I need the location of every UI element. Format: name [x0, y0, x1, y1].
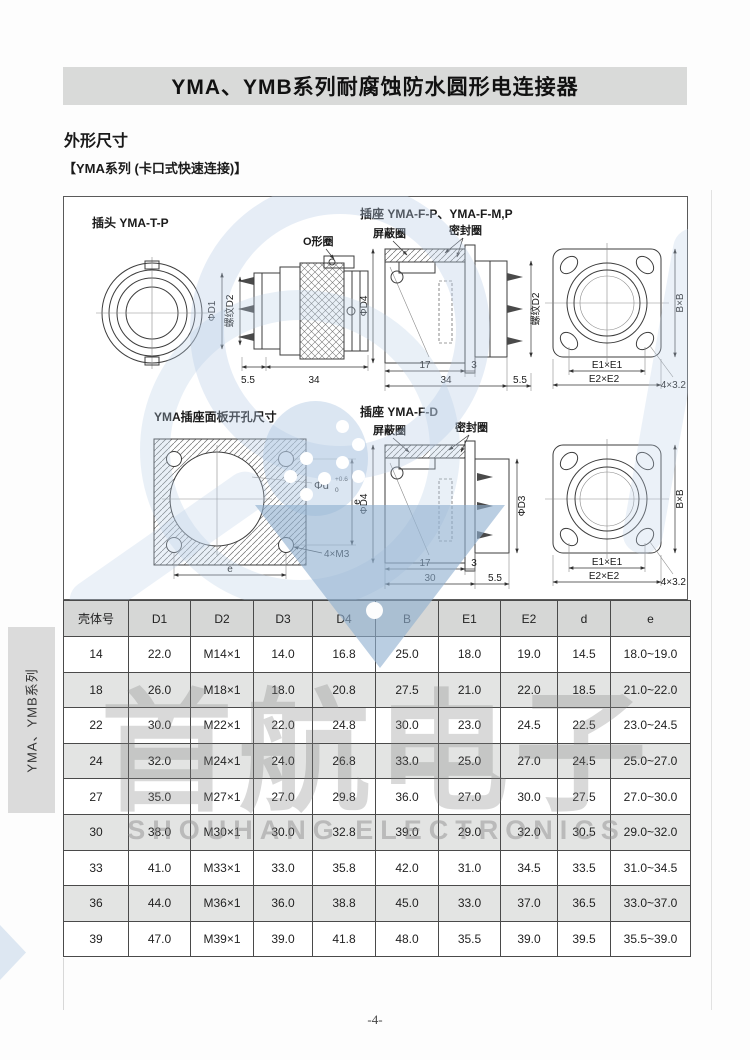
- panel-cutout-view: [154, 439, 306, 565]
- header-cell: 壳体号: [64, 601, 129, 637]
- dim-d4: ΦD4: [359, 493, 370, 514]
- table-cell: 24.5: [501, 708, 558, 744]
- table-cell: 18.5: [558, 672, 611, 708]
- dim-4x3-2: 4×3.2: [661, 380, 687, 391]
- table-cell: 27.0: [439, 779, 501, 815]
- table-cell: 22.0: [254, 708, 313, 744]
- series-subheading: 【YMA系列 (卡口式快速连接)】: [63, 158, 247, 177]
- table-cell: 35.0: [129, 779, 191, 815]
- table-cell: 19.0: [501, 637, 558, 673]
- table-row: 3644.0M36×136.038.845.033.037.036.533.0~…: [64, 886, 691, 922]
- header-cell: D1: [129, 601, 191, 637]
- socket-side-view: [385, 245, 523, 373]
- table-cell: 29.0: [439, 814, 501, 850]
- drawing-title: YMA插座面板开孔尺寸: [154, 409, 277, 424]
- drawing-title: 插座 YMA-F-P、YMA-F-M,P: [360, 206, 513, 221]
- header-cell: E2: [501, 601, 558, 637]
- table-row: 2230.0M22×122.024.830.023.024.522.523.0~…: [64, 708, 691, 744]
- shield-ring-label: 屏蔽圈: [373, 423, 406, 437]
- table-row: 1422.0M14×114.016.825.018.019.014.518.0~…: [64, 637, 691, 673]
- table-cell: 41.8: [313, 921, 376, 957]
- seal-ring-label: 密封圈: [455, 420, 488, 434]
- catalog-page: YMA、YMB系列耐腐蚀防水圆形电连接器 外形尺寸 【YMA系列 (卡口式快速连…: [0, 0, 750, 1060]
- table-cell: 30.0: [129, 708, 191, 744]
- table-cell: M24×1: [191, 743, 254, 779]
- table-cell: M30×1: [191, 814, 254, 850]
- table-cell: 29.0~32.0: [611, 814, 691, 850]
- table-cell: 14.0: [254, 637, 313, 673]
- socket-flange-view: [545, 439, 669, 559]
- table-row: 3341.0M33×133.035.842.031.034.533.531.0~…: [64, 850, 691, 886]
- dim-phi-d-tol-lower: 0: [335, 487, 339, 494]
- table-cell: 24: [64, 743, 129, 779]
- table-cell: 30.0: [501, 779, 558, 815]
- table-cell: 21.0~22.0: [611, 672, 691, 708]
- drawing-title: 插座 YMA-F-D: [360, 404, 438, 419]
- table-cell: 30.5: [558, 814, 611, 850]
- dim-d1: ΦD1: [207, 300, 218, 321]
- table-cell: 22: [64, 708, 129, 744]
- dim-17: 17: [419, 558, 431, 569]
- dim-3: 3: [471, 360, 477, 371]
- table-cell: 27.0: [254, 779, 313, 815]
- table-cell: 35.5~39.0: [611, 921, 691, 957]
- plug-front-view: [96, 257, 208, 369]
- table-cell: 24.5: [558, 743, 611, 779]
- table-cell: 35.5: [439, 921, 501, 957]
- table-cell: 33.5: [558, 850, 611, 886]
- table-cell: 36.0: [376, 779, 439, 815]
- table-cell: 33.0~37.0: [611, 886, 691, 922]
- table-cell: 41.0: [129, 850, 191, 886]
- dim-e1xe1: E1×E1: [592, 557, 623, 568]
- dim-bxb: B×B: [675, 293, 686, 313]
- table-cell: M36×1: [191, 886, 254, 922]
- page-title-bar: YMA、YMB系列耐腐蚀防水圆形电连接器: [63, 67, 687, 105]
- table-cell: 27.5: [376, 672, 439, 708]
- table-row: 2735.0M27×127.029.836.027.030.027.527.0~…: [64, 779, 691, 815]
- table-cell: 23.0: [439, 708, 501, 744]
- table-cell: 26.8: [313, 743, 376, 779]
- table-header-row: 壳体号D1D2D3D4BE1E2de: [64, 601, 691, 637]
- table-cell: 27: [64, 779, 129, 815]
- series-side-tab-label: YMA、YMB系列: [22, 668, 41, 772]
- dim-34: 34: [440, 375, 452, 386]
- table-cell: 38.8: [313, 886, 376, 922]
- dim-e1xe1: E1×E1: [592, 360, 623, 371]
- table-cell: 25.0: [439, 743, 501, 779]
- header-cell: D4: [313, 601, 376, 637]
- dim-34: 34: [308, 375, 320, 386]
- dim-thread-d2: 螺纹D2: [529, 292, 542, 325]
- table-row: 3038.0M30×130.032.839.029.032.030.529.0~…: [64, 814, 691, 850]
- section-heading: 外形尺寸: [64, 127, 128, 151]
- table-cell: 36.5: [558, 886, 611, 922]
- plug-side-view: [238, 256, 368, 359]
- table-cell: 47.0: [129, 921, 191, 957]
- table-cell: 33: [64, 850, 129, 886]
- table-cell: 44.0: [129, 886, 191, 922]
- dim-e2xe2: E2×E2: [589, 374, 620, 385]
- table-cell: 18.0: [254, 672, 313, 708]
- table-cell: 42.0: [376, 850, 439, 886]
- table-cell: 39.0: [254, 921, 313, 957]
- table-cell: 27.0~30.0: [611, 779, 691, 815]
- table-cell: 35.8: [313, 850, 376, 886]
- table-cell: 38.0: [129, 814, 191, 850]
- table-cell: M39×1: [191, 921, 254, 957]
- table-cell: 14: [64, 637, 129, 673]
- table-cell: 45.0: [376, 886, 439, 922]
- table-cell: 21.0: [439, 672, 501, 708]
- header-cell: e: [611, 601, 691, 637]
- table-body: 1422.0M14×114.016.825.018.019.014.518.0~…: [64, 637, 691, 957]
- table-cell: 33.0: [254, 850, 313, 886]
- table-cell: 48.0: [376, 921, 439, 957]
- table-cell: 20.8: [313, 672, 376, 708]
- table-cell: 22.5: [558, 708, 611, 744]
- drawings-frame: 插头 YMA-T-P O形圈: [63, 196, 688, 600]
- page-number: -4-: [0, 1012, 750, 1028]
- dim-5-5: 5.5: [513, 375, 527, 386]
- table-cell: 29.8: [313, 779, 376, 815]
- drawing-socket-yma-f-p: 插座 YMA-F-P、YMA-F-M,P 屏蔽圈 密封圈 ΦD4 螺纹D2: [357, 205, 687, 405]
- table-cell: 30: [64, 814, 129, 850]
- dim-d4: ΦD4: [359, 295, 370, 316]
- drawing-title: 插头 YMA-T-P: [92, 215, 169, 230]
- dim-5-5: 5.5: [488, 573, 502, 584]
- table-cell: 32.0: [501, 814, 558, 850]
- table-cell: 34.5: [501, 850, 558, 886]
- table-cell: 33.0: [376, 743, 439, 779]
- table-cell: 18.0~19.0: [611, 637, 691, 673]
- dim-d3: ΦD3: [517, 495, 528, 516]
- table-cell: 26.0: [129, 672, 191, 708]
- table-cell: 16.8: [313, 637, 376, 673]
- table-cell: 31.0~34.5: [611, 850, 691, 886]
- table-cell: 25.0~27.0: [611, 743, 691, 779]
- table-cell: 32.0: [129, 743, 191, 779]
- dim-3: 3: [471, 558, 477, 569]
- table-cell: M27×1: [191, 779, 254, 815]
- seal-ring-label: 密封圈: [449, 223, 482, 237]
- table-cell: M14×1: [191, 637, 254, 673]
- table-cell: 39.0: [501, 921, 558, 957]
- page-edge-line: [711, 190, 712, 1010]
- table-cell: 14.5: [558, 637, 611, 673]
- table-cell: 37.0: [501, 886, 558, 922]
- table-cell: 30.0: [376, 708, 439, 744]
- dim-thread-d2: 螺纹D2: [223, 294, 236, 327]
- table-cell: M22×1: [191, 708, 254, 744]
- dim-4xm3: 4×M3: [324, 549, 350, 560]
- table-cell: 23.0~24.5: [611, 708, 691, 744]
- dim-phi-d-tol-upper: +0.6: [335, 476, 348, 483]
- table-cell: 24.8: [313, 708, 376, 744]
- table-cell: 32.8: [313, 814, 376, 850]
- socket-side-view: [385, 441, 509, 571]
- table-header: 壳体号D1D2D3D4BE1E2de: [64, 601, 691, 637]
- header-cell: E1: [439, 601, 501, 637]
- table-cell: 22.0: [501, 672, 558, 708]
- drawing-plug-yma-t-p: 插头 YMA-T-P O形圈: [70, 209, 370, 399]
- dim-17: 17: [419, 360, 431, 371]
- shield-ring-label: 屏蔽圈: [373, 226, 406, 240]
- page-edge-line: [63, 958, 64, 1010]
- oring-label: O形圈: [303, 235, 334, 248]
- socket-flange-view: [545, 243, 669, 363]
- dim-phi-d: Φd: [314, 480, 329, 492]
- dim-bxb: B×B: [675, 489, 686, 509]
- table-cell: 36: [64, 886, 129, 922]
- header-cell: B: [376, 601, 439, 637]
- dim-e-horizontal: e: [227, 564, 233, 575]
- dim-5-5: 5.5: [241, 375, 255, 386]
- table-cell: 25.0: [376, 637, 439, 673]
- table-cell: 31.0: [439, 850, 501, 886]
- table-cell: 39.5: [558, 921, 611, 957]
- table-cell: 18: [64, 672, 129, 708]
- table-cell: 30.0: [254, 814, 313, 850]
- table-cell: 22.0: [129, 637, 191, 673]
- table-cell: 27.0: [501, 743, 558, 779]
- table-row: 2432.0M24×124.026.833.025.027.024.525.0~…: [64, 743, 691, 779]
- watermark-wedge: [0, 925, 26, 980]
- table-cell: 33.0: [439, 886, 501, 922]
- dimension-table: 壳体号D1D2D3D4BE1E2de 1422.0M14×114.016.825…: [63, 600, 691, 957]
- table-cell: 36.0: [254, 886, 313, 922]
- table-cell: 39.0: [376, 814, 439, 850]
- page-title: YMA、YMB系列耐腐蚀防水圆形电连接器: [171, 71, 578, 101]
- dim-30: 30: [424, 573, 436, 584]
- table-cell: M18×1: [191, 672, 254, 708]
- table-cell: 18.0: [439, 637, 501, 673]
- header-cell: D3: [254, 601, 313, 637]
- header-cell: D2: [191, 601, 254, 637]
- table-row: 1826.0M18×118.020.827.521.022.018.521.0~…: [64, 672, 691, 708]
- series-side-tab: YMA、YMB系列: [8, 627, 55, 813]
- header-cell: d: [558, 601, 611, 637]
- dim-4x3-2: 4×3.2: [661, 577, 687, 588]
- table-cell: 39: [64, 921, 129, 957]
- dim-e2xe2: E2×E2: [589, 571, 620, 582]
- drawing-socket-yma-f-d: 插座 YMA-F-D 屏蔽圈 密封圈 ΦD4 ΦD3: [357, 403, 687, 598]
- table-cell: 24.0: [254, 743, 313, 779]
- table-row: 3947.0M39×139.041.848.035.539.039.535.5~…: [64, 921, 691, 957]
- table-cell: M33×1: [191, 850, 254, 886]
- table-cell: 27.5: [558, 779, 611, 815]
